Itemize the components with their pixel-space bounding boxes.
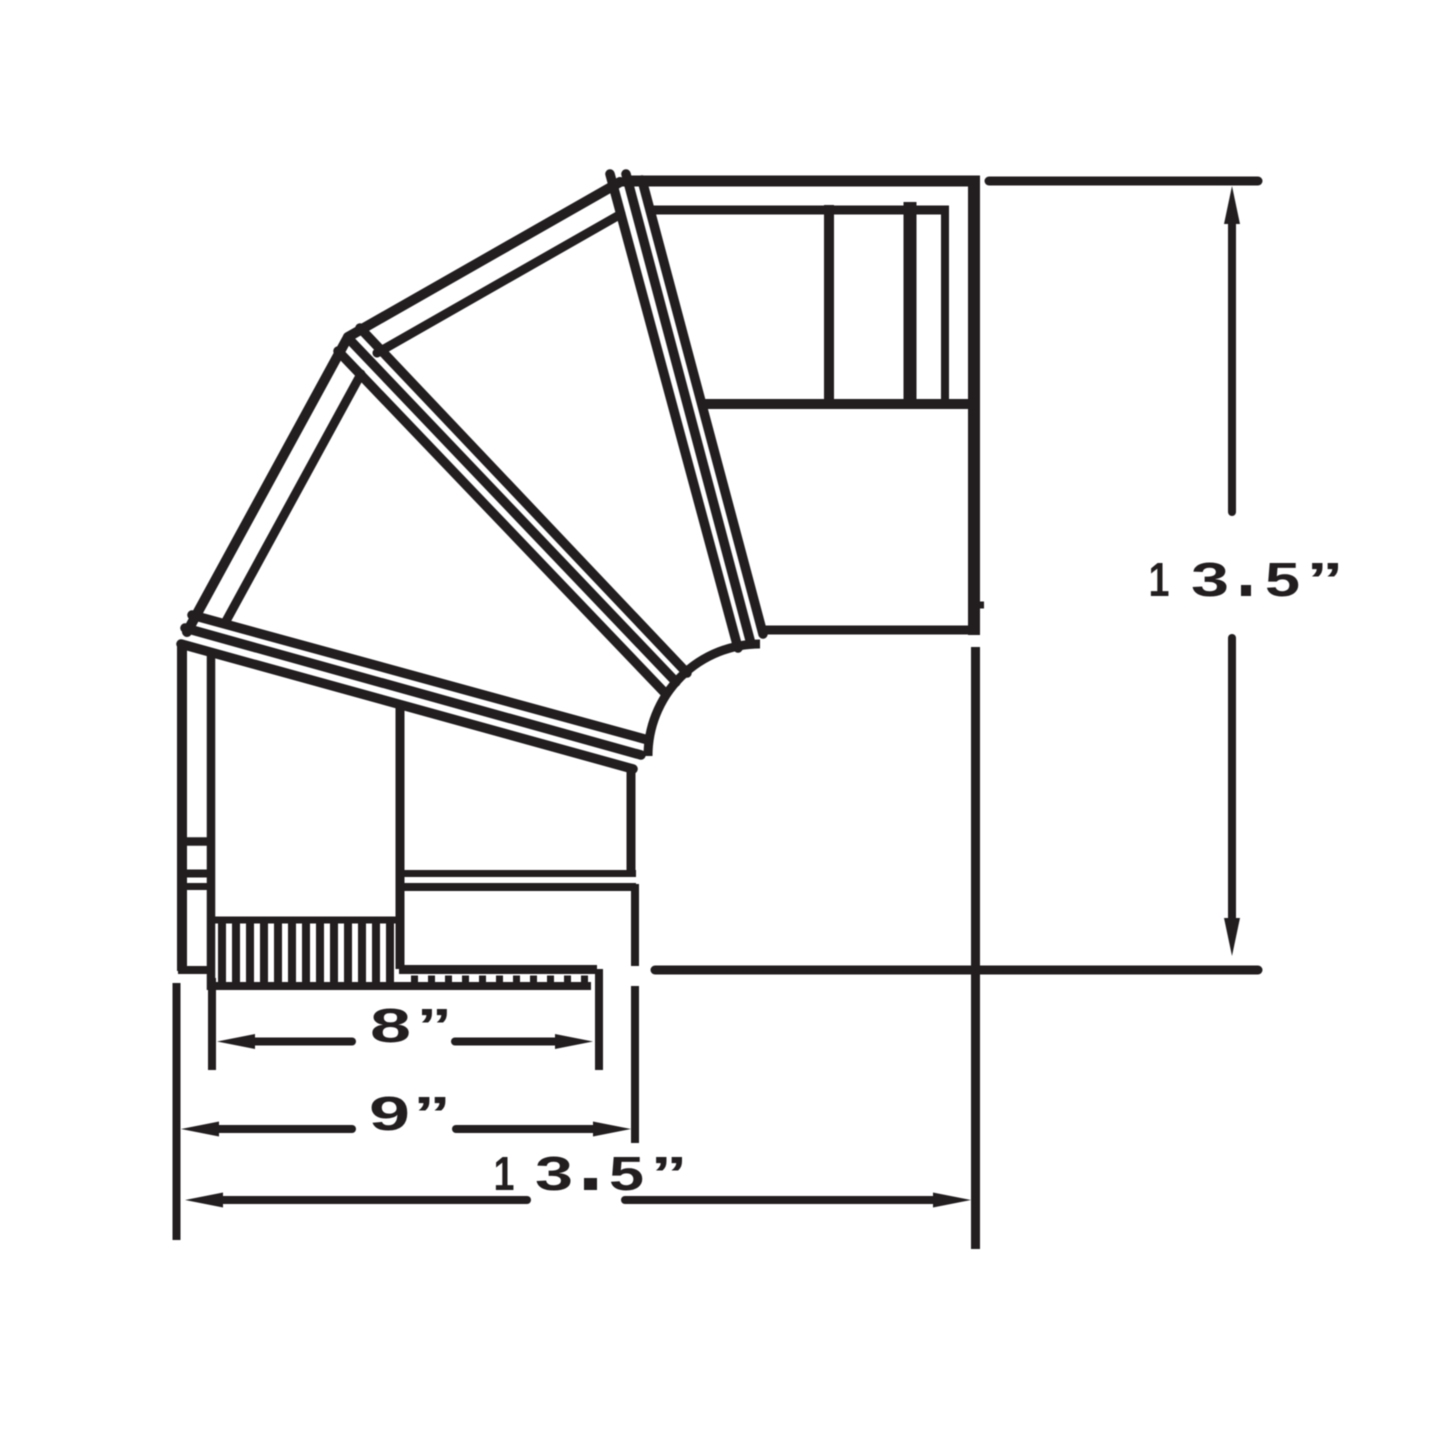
svg-text:8: 8 (370, 1000, 411, 1053)
svg-text:1: 1 (494, 1148, 515, 1201)
svg-text:”: ” (651, 1148, 688, 1201)
svg-text:”: ” (1307, 554, 1344, 607)
svg-text:3: 3 (1191, 554, 1229, 607)
svg-text:1: 1 (1149, 554, 1170, 607)
svg-text:9: 9 (369, 1088, 410, 1141)
svg-text:”: ” (417, 1000, 453, 1053)
svg-text:5: 5 (609, 1148, 644, 1201)
svg-text:”: ” (413, 1088, 451, 1141)
svg-text:3: 3 (535, 1148, 573, 1201)
svg-text:5: 5 (1265, 554, 1300, 607)
